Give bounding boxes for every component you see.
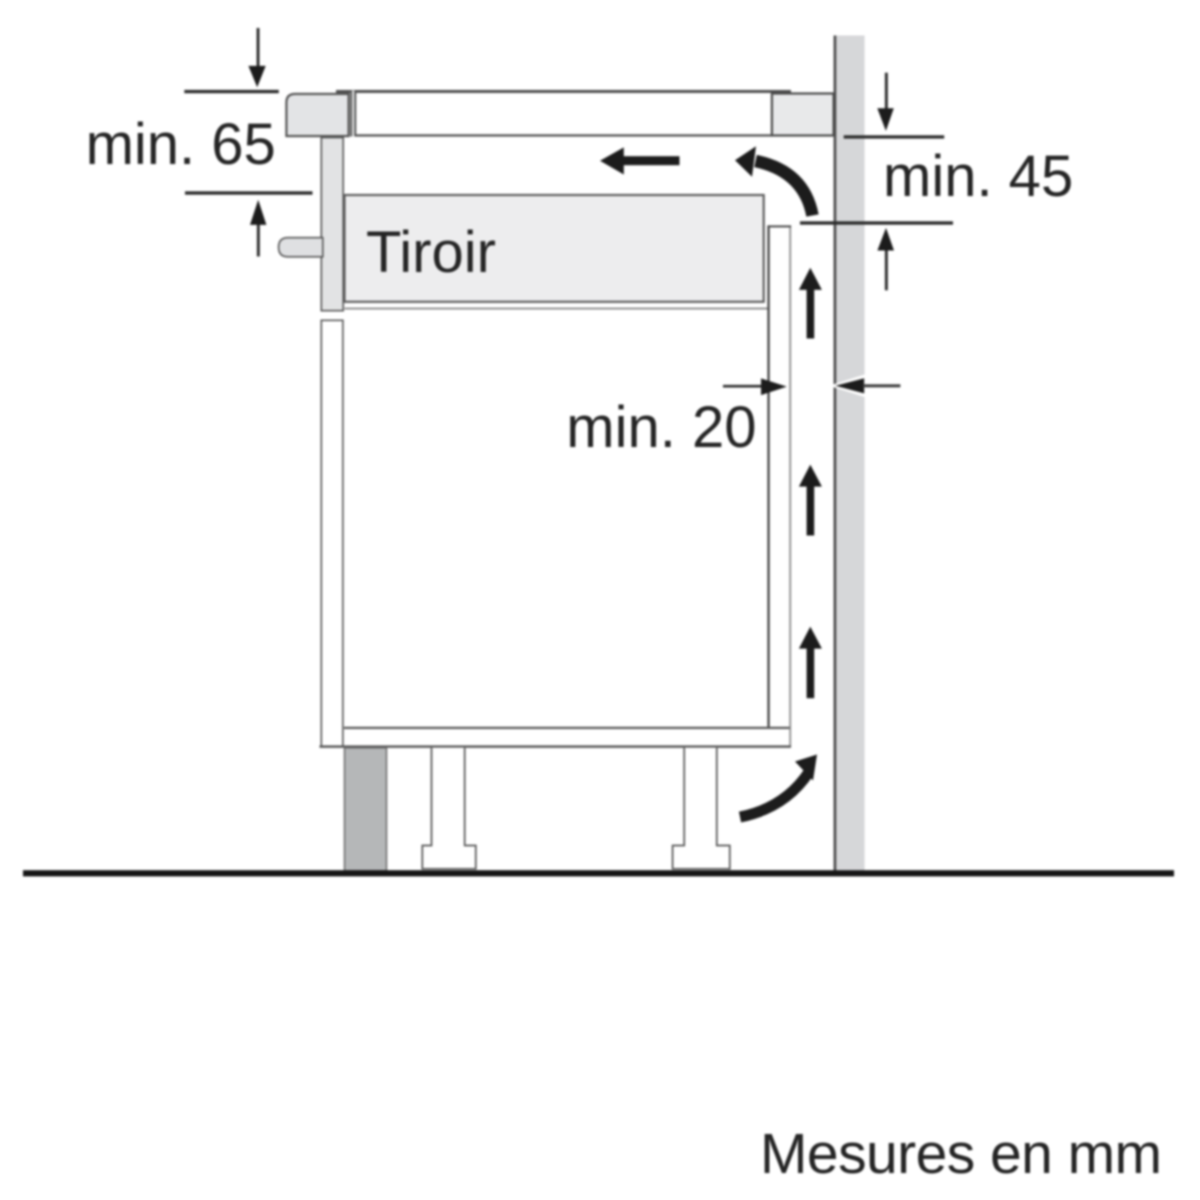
svg-text:min. 20: min. 20	[566, 395, 756, 460]
svg-text:Tiroir: Tiroir	[366, 220, 496, 285]
svg-text:min. 65: min. 65	[86, 112, 276, 177]
svg-text:Mesures en mm: Mesures en mm	[760, 1122, 1161, 1186]
svg-text:min. 45: min. 45	[883, 144, 1073, 209]
